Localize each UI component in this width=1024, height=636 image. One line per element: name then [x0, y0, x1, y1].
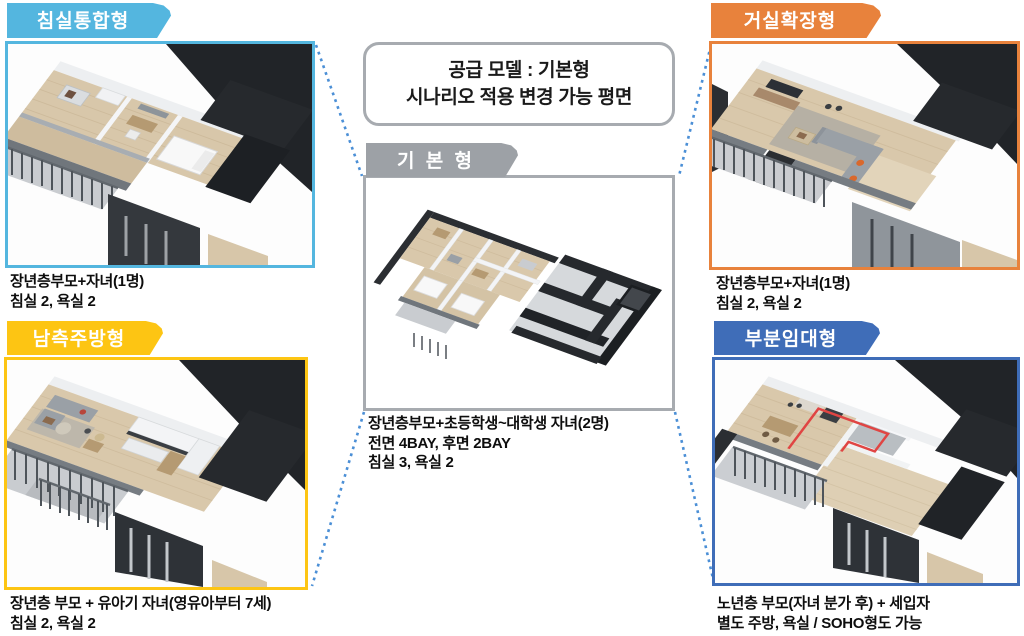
floorplan-render-partial-rental [712, 357, 1020, 586]
housing-supply-model-infographic: 침실통합형 [0, 0, 1024, 636]
connector-line-top-left [316, 45, 362, 176]
variant-tab-label: 남측주방형 [33, 324, 125, 351]
isometric-render-svg [7, 360, 305, 587]
caption-line: 전면 4BAY, 후면 2BAY [368, 434, 609, 454]
variant-tab-label: 침실통합형 [37, 6, 129, 33]
caption-line: 침실 2, 욕실 2 [716, 294, 850, 314]
basic-floorplan-panel [363, 175, 675, 411]
connector-line-bottom-right [675, 412, 714, 583]
variant-caption-bedroom-integrated: 장년층부모+자녀(1명) 침실 2, 욕실 2 [10, 272, 144, 311]
isometric-render-svg [715, 360, 1017, 583]
basic-type-caption: 장년층부모+초등학생~대학생 자녀(2명) 전면 4BAY, 후면 2BAY 침… [368, 414, 609, 473]
caption-line: 장년층 부모 + 유아기 자녀(영유아부터 7세) [10, 594, 271, 614]
caption-line: 침실 2, 욕실 2 [10, 614, 271, 634]
basic-type-tab: 기 본 형 [366, 143, 518, 177]
caption-line: 장년층부모+초등학생~대학생 자녀(2명) [368, 414, 609, 434]
isometric-render-svg [8, 44, 312, 265]
basic-type-tab-label: 기 본 형 [397, 146, 475, 173]
isometric-render-svg [366, 178, 672, 408]
variant-tab-living-extension: 거실확장형 [711, 3, 881, 38]
variant-tab-label: 부분임대형 [745, 324, 837, 351]
variant-tab-partial-rental: 부분임대형 [714, 321, 880, 355]
floorplan-render-living-extension [709, 41, 1020, 270]
connector-line-top-right [679, 45, 711, 176]
variant-tab-label: 거실확장형 [744, 6, 836, 33]
caption-line: 별도 주방, 욕실 / SOHO형도 가능 [717, 614, 930, 634]
header-line-1: 공급 모델 : 기본형 [448, 57, 589, 84]
connector-line-bottom-left [312, 412, 364, 586]
variant-caption-partial-rental: 노년층 부모(자녀 분가 후) + 세입자 별도 주방, 욕실 / SOHO형도… [717, 594, 930, 633]
variant-tab-south-kitchen: 남측주방형 [7, 321, 163, 355]
caption-line: 노년층 부모(자녀 분가 후) + 세입자 [717, 594, 930, 614]
variant-caption-living-extension: 장년층부모+자녀(1명) 침실 2, 욕실 2 [716, 274, 850, 313]
caption-line: 침실 2, 욕실 2 [10, 292, 144, 312]
variant-tab-bedroom-integrated: 침실통합형 [7, 3, 171, 38]
isometric-render-svg [712, 44, 1017, 267]
supply-model-header-box: 공급 모델 : 기본형 시나리오 적용 변경 가능 평면 [363, 42, 675, 126]
caption-line: 장년층부모+자녀(1명) [10, 272, 144, 292]
header-line-2: 시나리오 적용 변경 가능 평면 [406, 84, 632, 111]
variant-caption-south-kitchen: 장년층 부모 + 유아기 자녀(영유아부터 7세) 침실 2, 욕실 2 [10, 594, 271, 633]
caption-line: 장년층부모+자녀(1명) [716, 274, 850, 294]
floorplan-render-south-kitchen [4, 357, 308, 590]
caption-line: 침실 3, 욕실 2 [368, 453, 609, 473]
floorplan-render-bedroom-integrated [5, 41, 315, 268]
